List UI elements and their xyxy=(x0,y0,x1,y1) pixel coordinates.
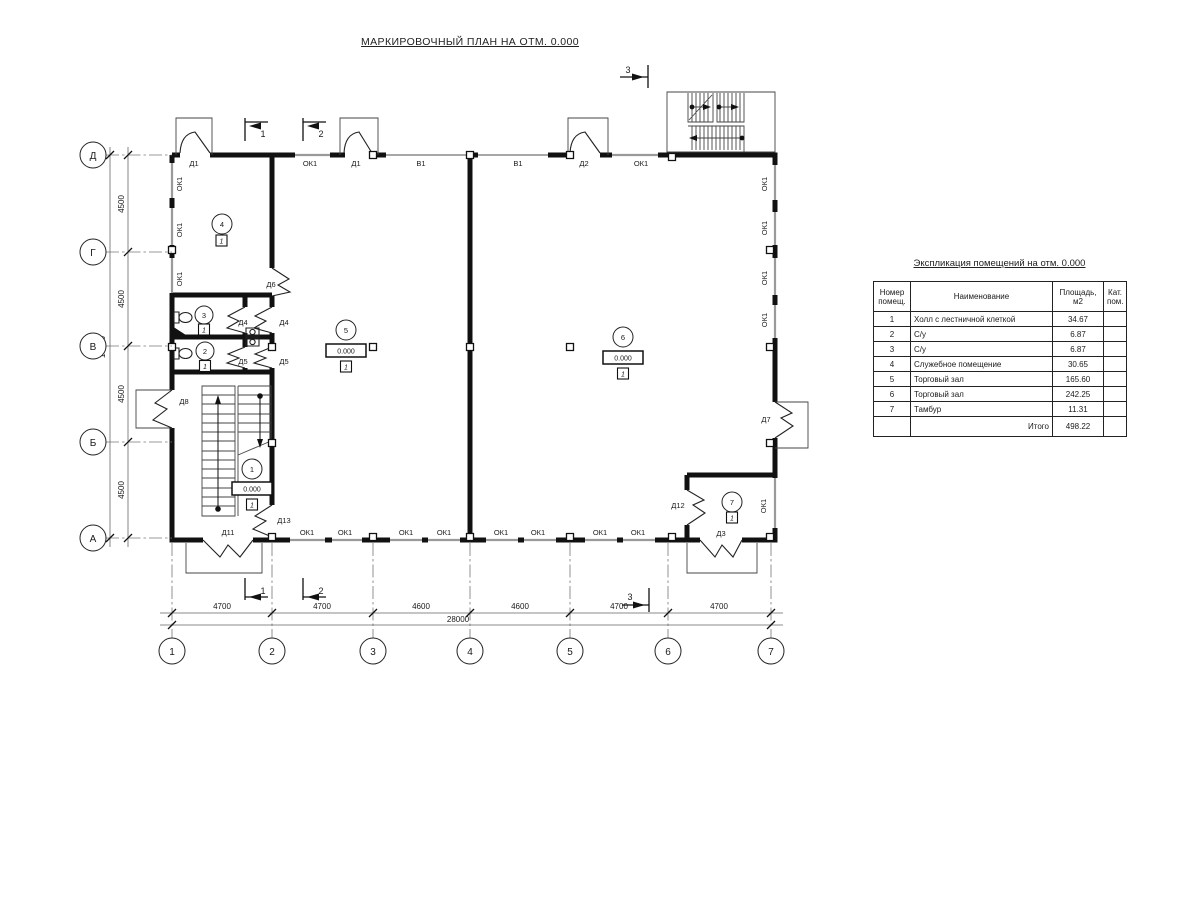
drawing-sheet: МАРКИРОВОЧНЫЙ ПЛАН НА ОТМ. 0.000 xyxy=(0,0,1200,900)
window-label: ОК1 xyxy=(494,528,508,537)
axis-bubble-label: 4 xyxy=(467,647,473,658)
dimension-label: 4700 xyxy=(610,602,628,611)
cell-name: Торговый зал xyxy=(911,387,1053,402)
grid-lines xyxy=(106,155,771,638)
level-mark: 0.000 xyxy=(243,487,261,494)
door-label: Д12 xyxy=(671,501,684,510)
window-label: ОК1 xyxy=(634,159,648,168)
section-arrow xyxy=(249,123,261,130)
stair-start-dot xyxy=(257,393,263,399)
door-marks xyxy=(153,268,793,557)
table-row: 4 Служебное помещение 30.65 xyxy=(874,357,1127,372)
door-label: Д7 xyxy=(761,415,770,424)
axis-bubble-label: 7 xyxy=(768,647,774,658)
floor-plan: Д1 ОК1 Д1 В1 В1 Д2 ОК1 ОК1 ОК1 ОК1 ОК1 О… xyxy=(0,0,1200,900)
level-mark: 0.000 xyxy=(337,349,355,356)
axis-bubble-label: А xyxy=(90,534,97,545)
stair-dot xyxy=(690,105,695,110)
window-label: ОК1 xyxy=(399,528,413,537)
window-label: ОК1 xyxy=(593,528,607,537)
toilet-fixture xyxy=(174,312,179,323)
door-label: Д8 xyxy=(179,397,188,406)
section-arrow xyxy=(307,123,319,130)
table-row: 1 Холл с лестничной клеткой 34.67 xyxy=(874,312,1127,327)
schedule-title: Экспликация помещений на отм. 0.000 xyxy=(873,258,1126,269)
external-stair xyxy=(667,92,775,152)
cell-area: 6.87 xyxy=(1053,327,1104,342)
window-label: ОК1 xyxy=(760,271,769,285)
room-number: 4 xyxy=(220,220,224,229)
cell-area: 6.87 xyxy=(1053,342,1104,357)
cell-name: Тамбур xyxy=(911,402,1053,417)
section-arrow xyxy=(249,594,261,601)
cell-area: 165.60 xyxy=(1053,372,1104,387)
axis-bubble-label: Б xyxy=(90,438,97,449)
window-label: ОК1 xyxy=(759,499,768,513)
dimension-label: 4600 xyxy=(511,602,529,611)
col-header-category: Кат. пом. xyxy=(1104,282,1127,312)
section-mark-label: 1 xyxy=(260,129,265,139)
axis-bubble-label: 2 xyxy=(269,647,275,658)
cell-name: С/у xyxy=(911,327,1053,342)
table-row: 5 Торговый зал 165.60 xyxy=(874,372,1127,387)
door-label: Д5 xyxy=(238,357,247,366)
window-label: ОК1 xyxy=(175,272,184,286)
floor-type-mark: 1 xyxy=(202,328,206,335)
arrow-up xyxy=(215,395,221,404)
toilet-bowl xyxy=(179,313,192,323)
dimension-label: 4700 xyxy=(313,602,331,611)
cell-category xyxy=(1104,312,1127,327)
section-arrow xyxy=(633,602,645,609)
floor-type-mark: 1 xyxy=(203,364,207,371)
dimension-label: 4500 xyxy=(117,481,126,499)
floor-type-mark: 1 xyxy=(220,239,224,246)
section-mark-label: 2 xyxy=(318,129,323,139)
dimension-label: 4700 xyxy=(710,602,728,611)
dimension-label: 4500 xyxy=(117,385,126,403)
dimension-label: 4500 xyxy=(117,195,126,213)
cell-category xyxy=(1104,357,1127,372)
section-mark-label: 3 xyxy=(625,65,630,75)
axis-bubble-label: Г xyxy=(90,248,96,259)
axis-bubble-label: 3 xyxy=(370,647,376,658)
floor-type-mark: 1 xyxy=(621,372,625,379)
cell-number: 2 xyxy=(874,327,911,342)
window-label: ОК1 xyxy=(437,528,451,537)
floor-type-mark: 1 xyxy=(250,503,254,510)
cell-category xyxy=(1104,417,1127,437)
col-header-number: Номер помещ. xyxy=(874,282,911,312)
door-label: Д2 xyxy=(579,159,588,168)
axis-bubble-label: 1 xyxy=(169,647,175,658)
cell-category xyxy=(1104,402,1127,417)
col-header-name: Наименование xyxy=(911,282,1053,312)
col-header-area: Площадь, м2 xyxy=(1053,282,1104,312)
arrow-left xyxy=(689,135,697,141)
total-row: Итого 498.22 xyxy=(874,417,1127,437)
door-label: Д4 xyxy=(279,318,288,327)
axis-bubble-label: Д xyxy=(90,151,97,162)
window-label: ОК1 xyxy=(531,528,545,537)
window-label: ОК1 xyxy=(175,177,184,191)
level-mark: 0.000 xyxy=(614,356,632,363)
total-label: Итого xyxy=(911,417,1053,437)
schedule-header-row: Номер помещ. Наименование Площадь, м2 Ка… xyxy=(874,282,1127,312)
cell-area: 242.25 xyxy=(1053,387,1104,402)
section-mark-label: 1 xyxy=(260,586,265,596)
dimension-ticks xyxy=(106,151,775,629)
glazing-label: В1 xyxy=(416,159,425,168)
dimension-label: 28000 xyxy=(447,615,470,624)
entrance-door-leafs xyxy=(180,132,600,153)
schedule-table: Номер помещ. Наименование Площадь, м2 Ка… xyxy=(873,281,1127,437)
cell-category xyxy=(1104,327,1127,342)
cell-number xyxy=(874,417,911,437)
door-label: Д5 xyxy=(279,357,288,366)
window-label: ОК1 xyxy=(300,528,314,537)
total-area: 498.22 xyxy=(1053,417,1104,437)
door-label: Д4 xyxy=(238,318,247,327)
floor-type-mark: 1 xyxy=(730,516,734,523)
cell-category xyxy=(1104,387,1127,402)
dimension-label: 4600 xyxy=(412,602,430,611)
door-label: Д1 xyxy=(351,159,360,168)
table-row: 6 Торговый зал 242.25 xyxy=(874,387,1127,402)
room-number: 5 xyxy=(344,326,348,335)
cell-category xyxy=(1104,342,1127,357)
floor-type-mark: 1 xyxy=(344,365,348,372)
room-number: 6 xyxy=(621,333,625,342)
sink-bowl xyxy=(250,339,255,344)
cell-name: Торговый зал xyxy=(911,372,1053,387)
door-label: Д6 xyxy=(266,280,275,289)
room-number: 2 xyxy=(203,347,207,356)
shaft-hatch xyxy=(172,326,189,337)
axis-bubble-label: 5 xyxy=(567,647,573,658)
cell-number: 3 xyxy=(874,342,911,357)
room-number: 3 xyxy=(202,311,206,320)
cell-area: 34.67 xyxy=(1053,312,1104,327)
door-label: Д11 xyxy=(222,528,235,537)
room-number: 7 xyxy=(730,498,734,507)
arrow-right xyxy=(703,104,711,110)
window-label: ОК1 xyxy=(175,223,184,237)
cell-number: 5 xyxy=(874,372,911,387)
stair-flights xyxy=(202,386,271,516)
stair-start-dot xyxy=(215,506,221,512)
table-row: 7 Тамбур 11.31 xyxy=(874,402,1127,417)
table-row: 3 С/у 6.87 xyxy=(874,342,1127,357)
cell-number: 1 xyxy=(874,312,911,327)
cell-category xyxy=(1104,372,1127,387)
window-label: ОК1 xyxy=(760,177,769,191)
toilet-bowl xyxy=(179,349,192,359)
window-label: ОК1 xyxy=(631,528,645,537)
cell-name: Холл с лестничной клеткой xyxy=(911,312,1053,327)
section-arrow xyxy=(632,74,644,81)
door-label: Д13 xyxy=(277,516,290,525)
stair-dot xyxy=(740,136,745,141)
cell-area: 30.65 xyxy=(1053,357,1104,372)
dimension-label: 4500 xyxy=(117,290,126,308)
section-mark-label: 2 xyxy=(318,586,323,596)
window-label: ОК1 xyxy=(338,528,352,537)
window-label: ОК1 xyxy=(760,221,769,235)
cell-area: 11.31 xyxy=(1053,402,1104,417)
room-schedule: Экспликация помещений на отм. 0.000 Номе… xyxy=(873,258,1126,437)
cell-number: 6 xyxy=(874,387,911,402)
glazing-label: В1 xyxy=(513,159,522,168)
cell-number: 4 xyxy=(874,357,911,372)
axis-bubble-label: В xyxy=(90,342,97,353)
dimension-label: 4700 xyxy=(213,602,231,611)
arrow-right xyxy=(731,104,739,110)
door-label: Д1 xyxy=(189,159,198,168)
section-mark-label: 3 xyxy=(627,592,632,602)
door-canopies xyxy=(176,118,608,155)
room-number: 1 xyxy=(250,465,254,474)
window-label: ОК1 xyxy=(303,159,317,168)
sink-bowl xyxy=(250,329,255,334)
window-label: ОК1 xyxy=(760,313,769,327)
cell-name: Служебное помещение xyxy=(911,357,1053,372)
stair-dot xyxy=(717,105,722,110)
section-arrow xyxy=(307,594,319,601)
table-row: 2 С/у 6.87 xyxy=(874,327,1127,342)
axis-bubble-label: 6 xyxy=(665,647,671,658)
cell-number: 7 xyxy=(874,402,911,417)
door-label: Д3 xyxy=(716,529,725,538)
cell-name: С/у xyxy=(911,342,1053,357)
